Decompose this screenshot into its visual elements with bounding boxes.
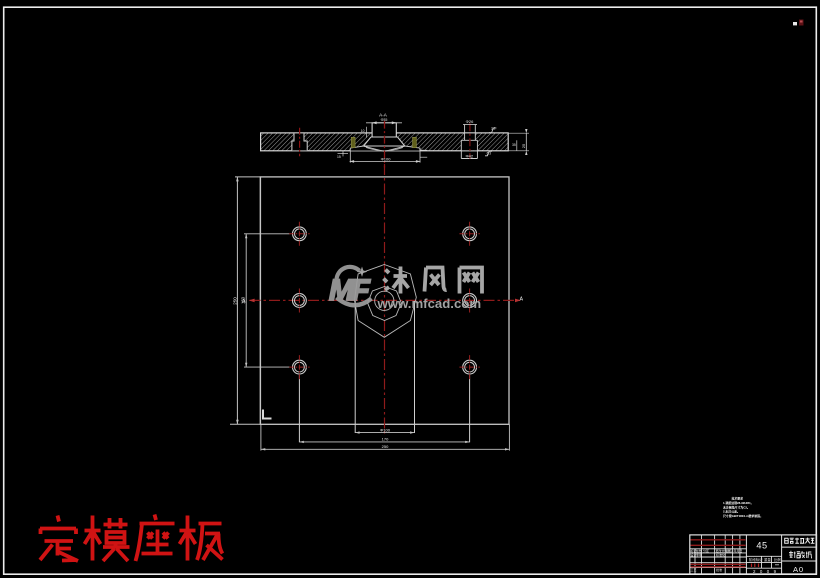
svg-text:Φ100: Φ100 (380, 427, 391, 432)
svg-text:重量: 重量 (764, 557, 771, 562)
svg-text:签名: 签名 (726, 548, 732, 553)
svg-text:批准: 批准 (716, 567, 722, 572)
svg-text:Φ26: Φ26 (466, 119, 474, 124)
svg-text:A-A: A-A (379, 112, 388, 117)
svg-text:年月日: 年月日 (734, 548, 743, 553)
svg-text:3.2: 3.2 (491, 127, 496, 131)
svg-text:A0: A0 (793, 565, 804, 574)
svg-text:技术要求: 技术要求 (732, 496, 744, 501)
svg-text:分区: 分区 (703, 548, 709, 553)
svg-text:170: 170 (382, 437, 389, 442)
svg-text:2 0 0 9: 2 0 0 9 (753, 569, 778, 574)
svg-text:比例: 比例 (774, 557, 781, 562)
svg-text:35: 35 (512, 143, 516, 147)
svg-text:6.3: 6.3 (487, 151, 492, 155)
svg-text:阶段标记: 阶段标记 (749, 557, 763, 562)
svg-text:标准化: 标准化 (716, 552, 725, 557)
svg-text:Φ42: Φ42 (465, 154, 473, 159)
svg-text:10: 10 (361, 129, 365, 133)
svg-text:25: 25 (521, 143, 526, 148)
svg-text:2.未注公差。: 2.未注公差。 (723, 509, 740, 514)
svg-text:15: 15 (337, 155, 341, 159)
svg-text:Φ100: Φ100 (381, 156, 392, 161)
svg-text:李明: 李明 (696, 552, 702, 557)
svg-text:www.mfcad.com: www.mfcad.com (377, 296, 482, 311)
svg-text:45: 45 (756, 540, 767, 550)
svg-text:Φ35: Φ35 (381, 118, 388, 122)
svg-text:1.调质处理28-32HRC。: 1.调质处理28-32HRC。 (723, 500, 754, 505)
svg-text:未注倒角尺寸为C2。: 未注倒角尺寸为C2。 (722, 504, 750, 509)
svg-text:工艺: 工艺 (691, 567, 697, 572)
svg-text:250: 250 (382, 444, 389, 449)
svg-text:250: 250 (233, 297, 238, 305)
svg-text:尺寸按GB/T1804-m要求制造。: 尺寸按GB/T1804-m要求制造。 (723, 513, 763, 518)
